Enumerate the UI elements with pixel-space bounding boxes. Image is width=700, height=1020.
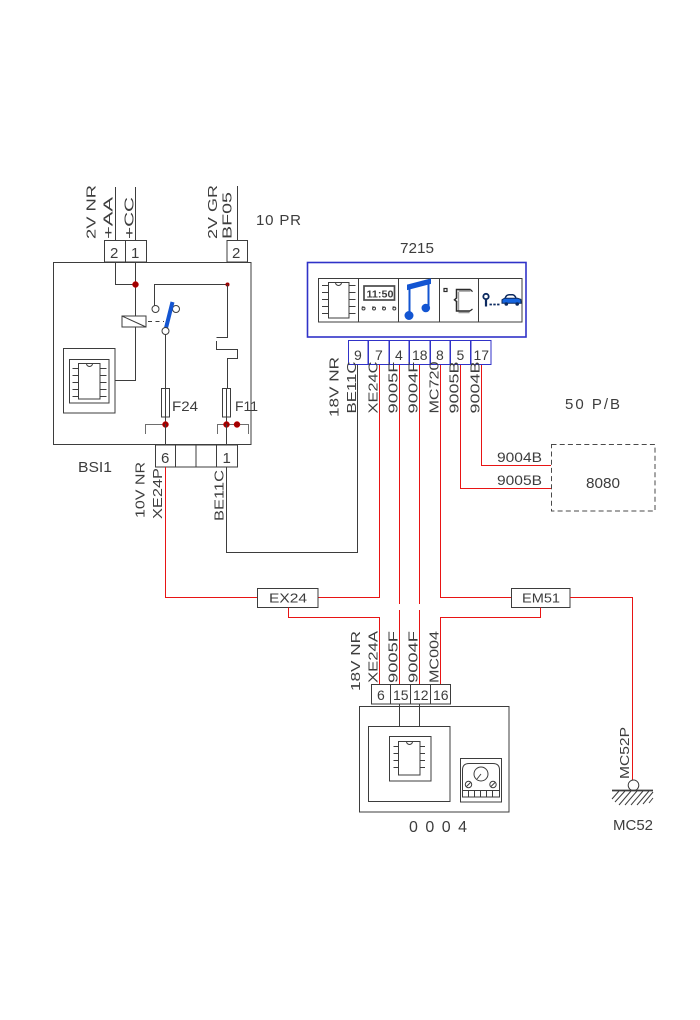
svg-text:16: 16 [433,687,449,703]
svg-text:XE24P: XE24P [150,468,165,519]
svg-text:18V NR: 18V NR [327,357,342,417]
svg-text:4: 4 [395,347,403,363]
svg-text:7: 7 [375,347,383,363]
svg-text:10 PR: 10 PR [256,212,301,229]
svg-text:MC52: MC52 [613,817,653,834]
svg-text:15: 15 [393,687,409,703]
svg-text:BE11C: BE11C [212,470,227,521]
svg-text:9004F: 9004F [406,631,421,683]
svg-text:F24: F24 [172,399,199,414]
svg-text:EM51: EM51 [522,591,560,606]
svg-text:11:50: 11:50 [367,289,394,301]
svg-text:2: 2 [110,245,118,262]
svg-text:BSI1: BSI1 [78,459,112,476]
svg-text:50 P/B: 50 P/B [565,396,620,413]
svg-text:9005B: 9005B [447,362,462,414]
svg-text:9004B: 9004B [497,450,542,465]
svg-text:0004: 0004 [409,819,467,836]
svg-text:9004F: 9004F [406,361,421,413]
svg-text:2: 2 [232,245,240,262]
svg-text:+CC: +CC [122,197,137,239]
svg-text:5: 5 [457,347,465,363]
svg-text:EX24: EX24 [269,591,307,606]
svg-text:17: 17 [474,347,490,363]
svg-text:18V NR: 18V NR [348,631,363,691]
svg-text:1: 1 [223,450,231,467]
svg-text:2V NR: 2V NR [84,185,99,239]
svg-text:+AA: +AA [101,196,116,239]
svg-text:8080: 8080 [586,475,620,492]
svg-text:9: 9 [354,347,362,363]
svg-text:6: 6 [377,687,385,703]
svg-text:MC004: MC004 [427,631,442,683]
svg-text:7215: 7215 [400,240,434,257]
svg-text:2V GR: 2V GR [205,185,220,239]
svg-text:XE24A: XE24A [366,631,381,683]
svg-text:9005F: 9005F [386,631,401,683]
svg-text:9005F: 9005F [386,361,401,413]
svg-text:9005B: 9005B [497,473,542,488]
svg-text:MC52P: MC52P [617,727,632,779]
svg-text:12: 12 [413,687,429,703]
svg-text:9004B: 9004B [468,362,483,414]
svg-text:BE11C: BE11C [344,362,359,414]
svg-text:BF05: BF05 [220,192,235,239]
svg-text:6: 6 [161,450,169,467]
svg-text:1: 1 [131,245,139,262]
svg-text:MC720: MC720 [427,362,442,414]
svg-text:XE24C: XE24C [366,362,381,414]
svg-text:18: 18 [412,347,428,363]
svg-text:F11: F11 [235,399,258,414]
svg-text:10V NR: 10V NR [133,462,148,518]
svg-text:8: 8 [436,347,444,363]
